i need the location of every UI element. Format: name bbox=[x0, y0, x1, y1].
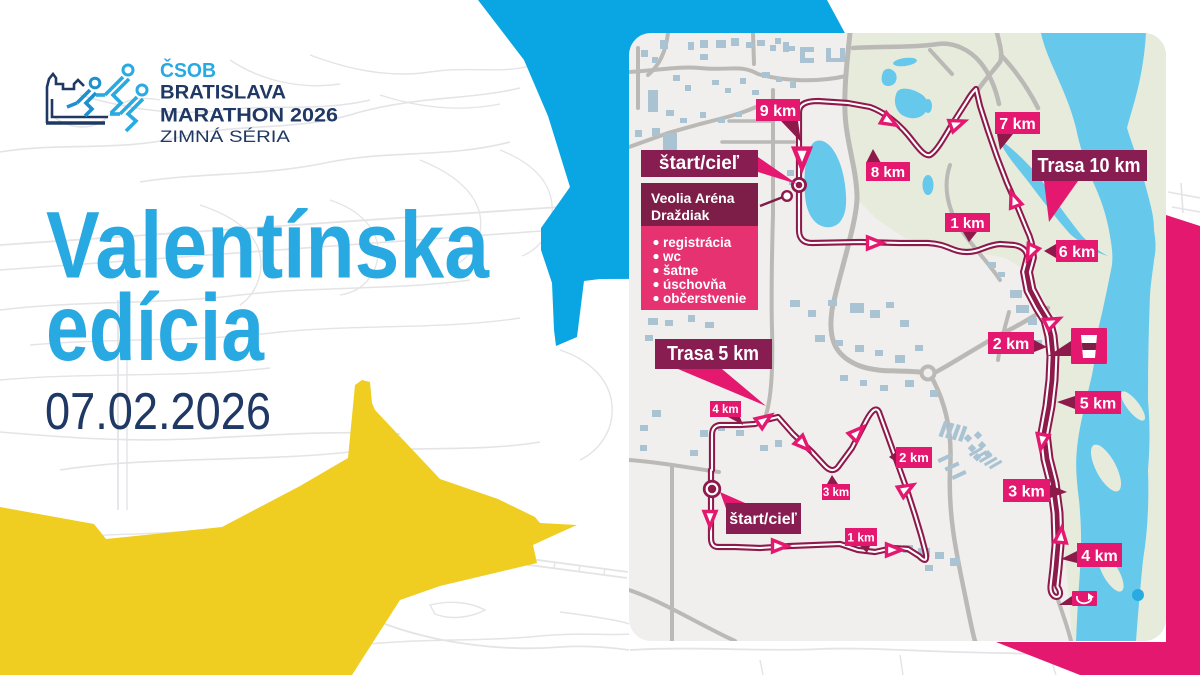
svg-text:šatne: šatne bbox=[663, 263, 699, 278]
svg-text:registrácia: registrácia bbox=[663, 235, 732, 250]
svg-text:07.02.2026: 07.02.2026 bbox=[45, 383, 271, 441]
svg-text:Trasa 10 km: Trasa 10 km bbox=[1038, 155, 1141, 177]
svg-text:občerstvenie: občerstvenie bbox=[663, 291, 747, 306]
svg-text:3 km: 3 km bbox=[823, 487, 849, 499]
svg-text:4 km: 4 km bbox=[712, 404, 738, 416]
svg-text:2 km: 2 km bbox=[899, 450, 929, 465]
svg-text:7 km: 7 km bbox=[999, 116, 1035, 133]
svg-text:4 km: 4 km bbox=[1081, 548, 1117, 565]
svg-text:3 km: 3 km bbox=[1008, 483, 1044, 500]
svg-text:6 km: 6 km bbox=[1059, 244, 1095, 261]
svg-text:8 km: 8 km bbox=[871, 164, 905, 181]
svg-text:štart/cieľ: štart/cieľ bbox=[729, 511, 797, 528]
svg-text:Trasa 5 km: Trasa 5 km bbox=[667, 343, 759, 365]
svg-text:2 km: 2 km bbox=[993, 336, 1029, 353]
svg-text:štart/cieľ: štart/cieľ bbox=[659, 153, 740, 174]
svg-text:1 km: 1 km bbox=[847, 530, 874, 544]
svg-text:ČSOB: ČSOB bbox=[160, 58, 216, 82]
svg-text:5 km: 5 km bbox=[1080, 395, 1116, 412]
svg-text:9 km: 9 km bbox=[760, 103, 796, 120]
svg-text:ZIMNÁ SÉRIA: ZIMNÁ SÉRIA bbox=[160, 127, 291, 146]
svg-text:BRATISLAVA: BRATISLAVA bbox=[160, 81, 286, 103]
svg-text:1 km: 1 km bbox=[950, 215, 984, 232]
svg-text:MARATHON 2026: MARATHON 2026 bbox=[160, 105, 338, 127]
svg-text:Veolia Aréna: Veolia Aréna bbox=[651, 190, 735, 206]
svg-text:Draždiak: Draždiak bbox=[651, 207, 710, 223]
svg-text:edícia: edícia bbox=[46, 275, 265, 381]
svg-text:wc: wc bbox=[662, 249, 682, 264]
svg-text:úschovňa: úschovňa bbox=[663, 277, 727, 292]
